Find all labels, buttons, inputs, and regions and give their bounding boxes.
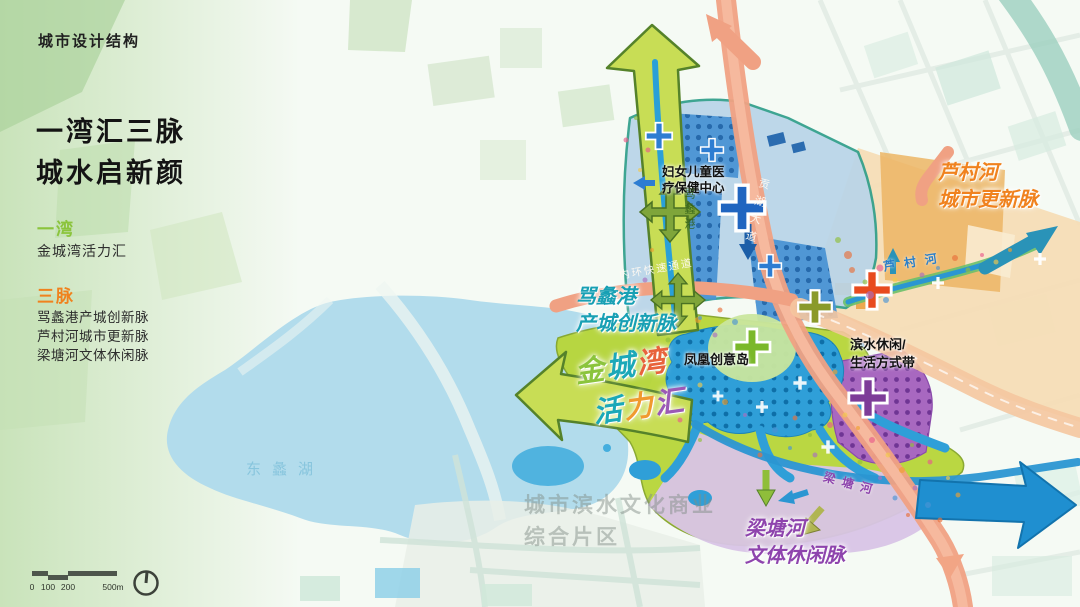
legend-vein-item: 骂蠡港产城创新脉: [37, 308, 149, 328]
legend-vein-item: 梁塘河文体休闲脉: [37, 346, 149, 366]
river-mali-label: 骂蠡港: [681, 188, 697, 233]
scale-tick: 0: [30, 582, 35, 592]
char: 汇: [653, 385, 688, 421]
legend-three-veins-label: 三脉: [37, 282, 75, 307]
urban-design-structure-map: 城市设计结构 一湾汇三脉 城水启新颜 一湾 金城湾活力汇 三脉 骂蠡港产城创新脉…: [0, 0, 1080, 607]
lake-label: 东蠡湖: [246, 458, 324, 479]
headline: 一湾汇三脉 城水启新颜: [36, 112, 186, 193]
char: 活: [591, 394, 626, 430]
page-title: 城市设计结构: [38, 30, 140, 51]
scale-segment: [48, 575, 68, 580]
liangtang-vein-label: 梁塘河 文体休闲脉: [745, 516, 845, 570]
scale-segment: [68, 571, 117, 576]
legend-vein-item: 芦村河城市更新脉: [37, 327, 149, 347]
char: 湾: [635, 345, 670, 381]
district-watermark: 城市滨水文化商业 综合片区: [524, 490, 716, 553]
scale-tick: 200: [61, 582, 75, 592]
waterfront-belt-label: 滨水休闲/ 生活方式带: [850, 336, 915, 371]
compass-icon: [131, 568, 161, 598]
mali-vein-label: 骂蠡港 产城创新脉: [576, 284, 676, 338]
scale-tick: 100: [41, 582, 55, 592]
char: 力: [622, 389, 657, 425]
char: 城: [604, 349, 639, 385]
legend-one-bay-label: 一湾: [37, 215, 75, 240]
scale-tick: 500m: [102, 582, 123, 592]
phoenix-island-label: 凤凰创意岛: [684, 349, 749, 368]
legend-one-bay-item: 金城湾活力汇: [37, 241, 127, 261]
lucun-vein-label: 芦村河 城市更新脉: [938, 160, 1038, 214]
scale-segment: [32, 571, 48, 576]
char: 金: [573, 354, 608, 390]
